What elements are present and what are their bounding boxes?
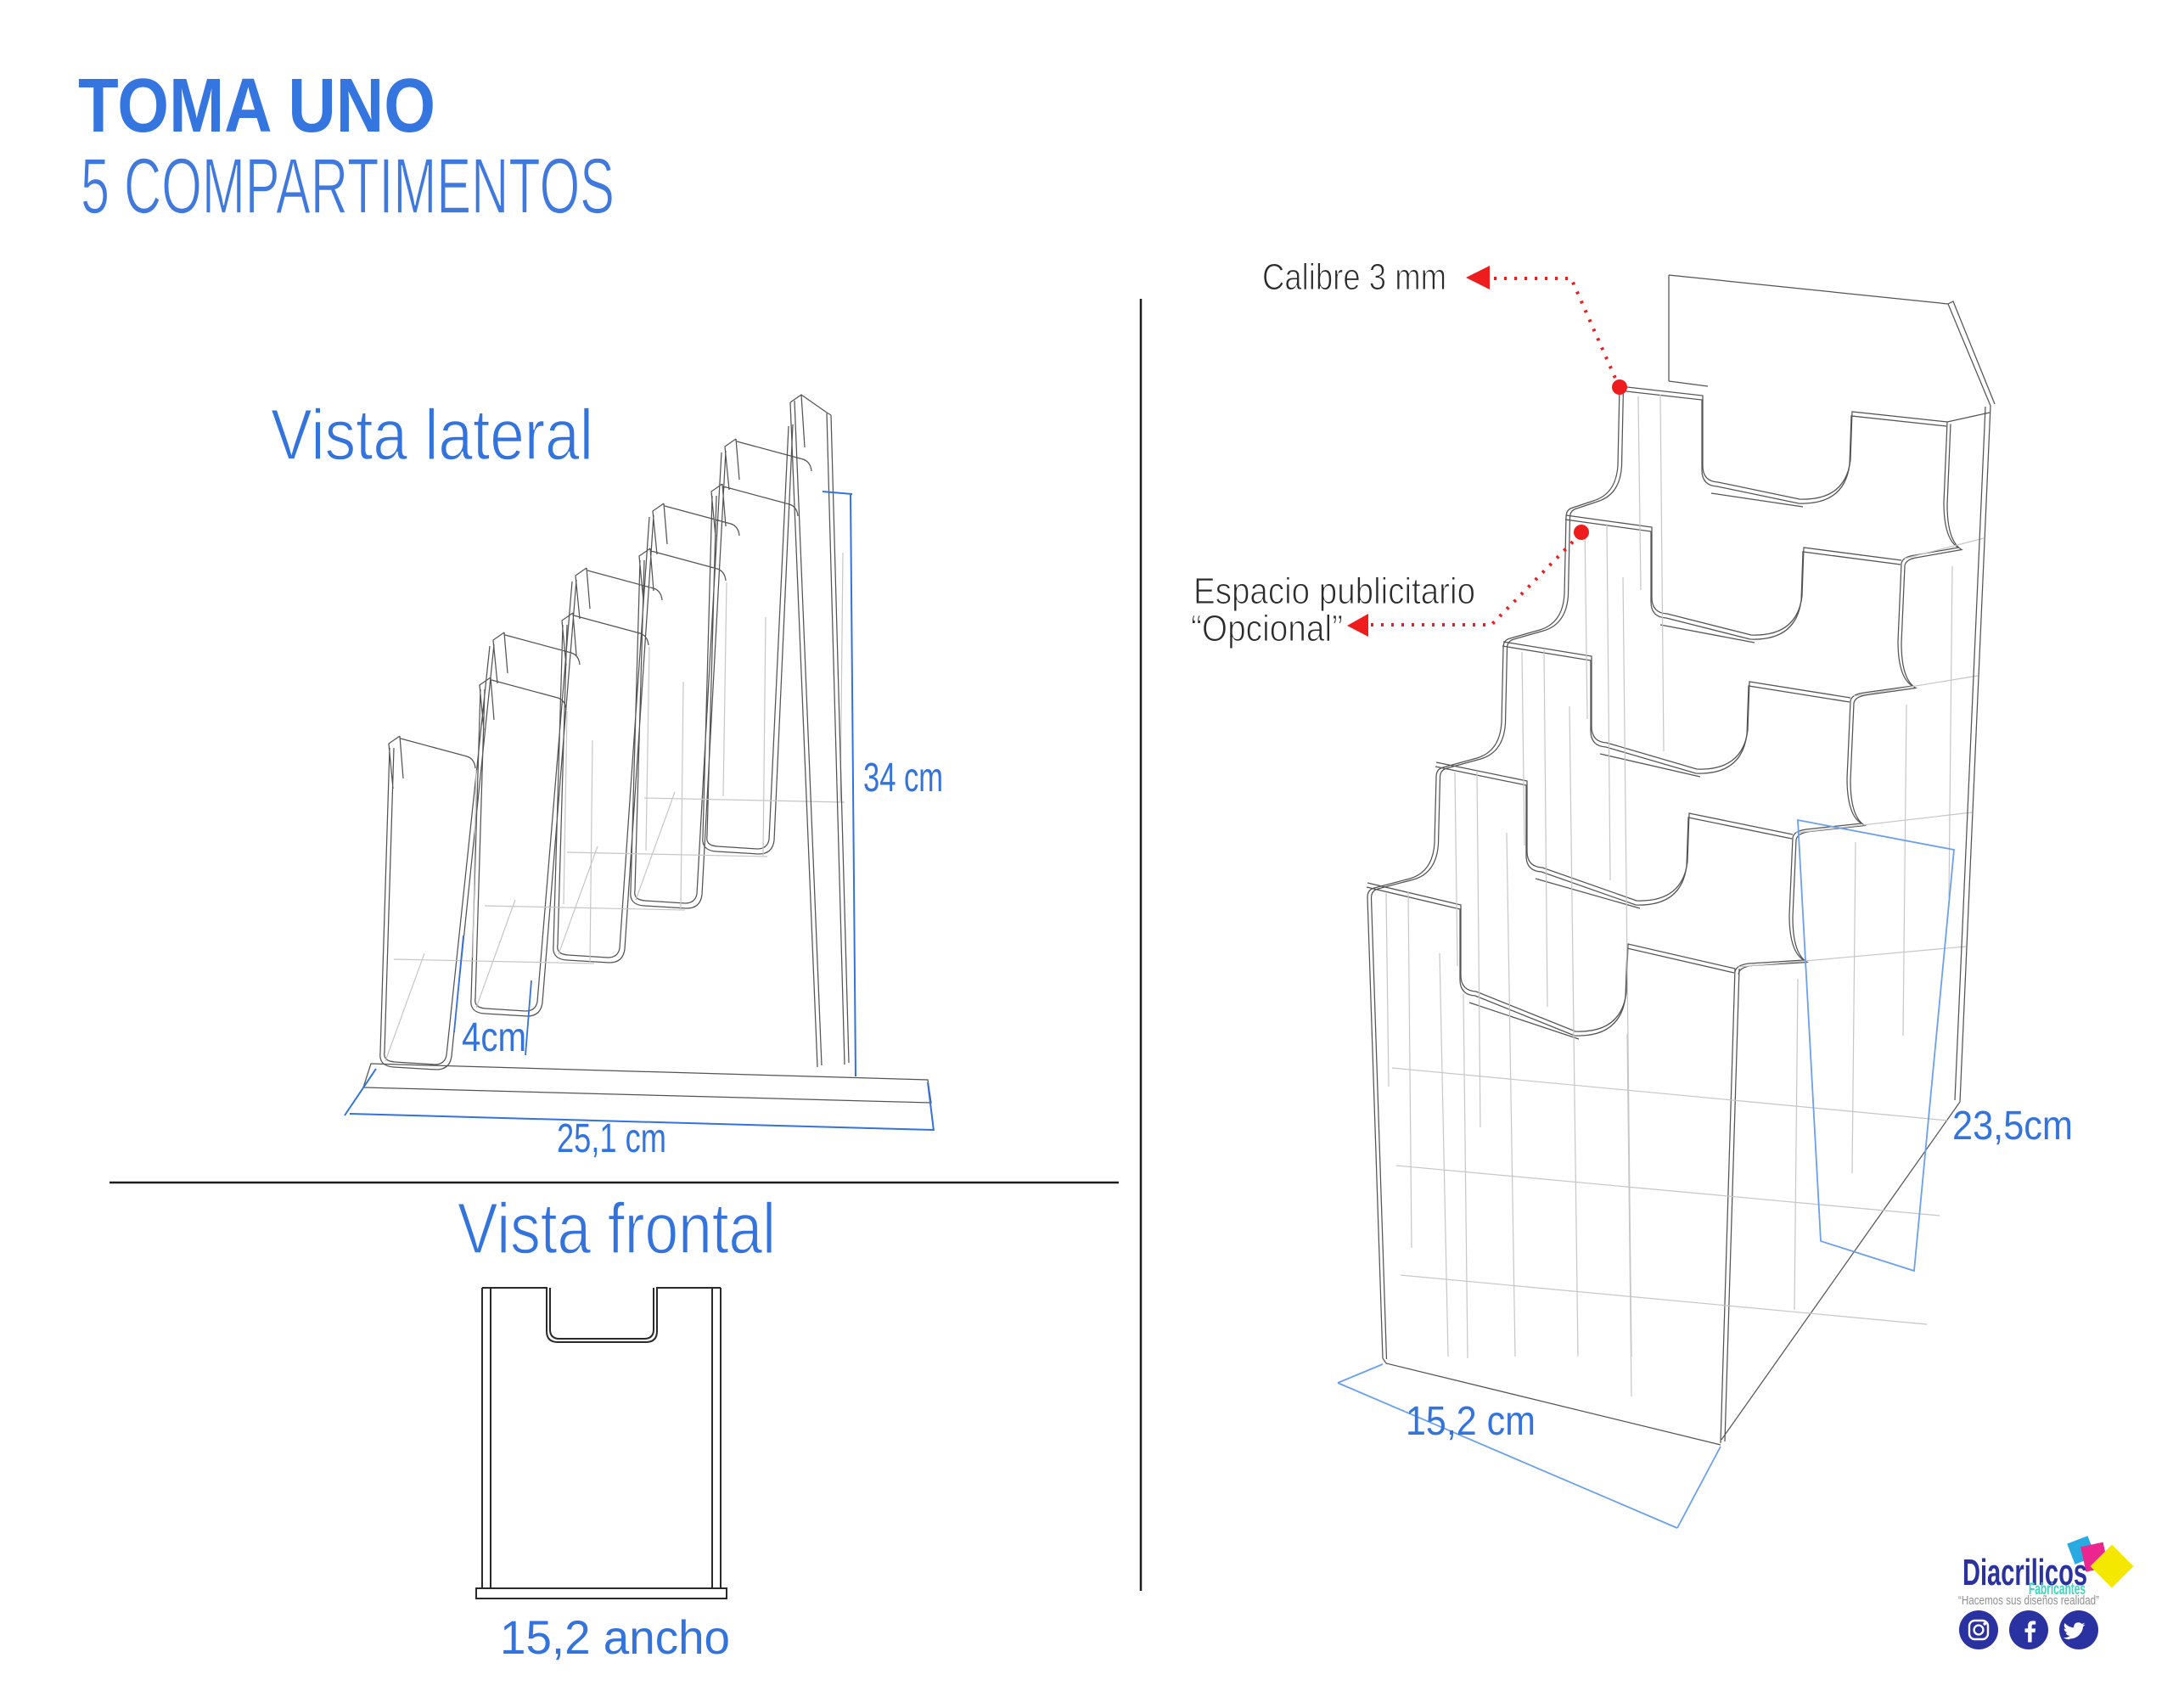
svg-text:5 COMPARTIMENTOS: 5 COMPARTIMENTOS: [81, 142, 615, 230]
svg-text:4cm: 4cm: [462, 1015, 526, 1060]
svg-text:Calibre 3 mm: Calibre 3 mm: [1262, 256, 1446, 298]
svg-text:“Opcional”: “Opcional”: [1191, 608, 1343, 649]
svg-text:Vista lateral: Vista lateral: [271, 395, 593, 475]
svg-text:Vista frontal: Vista frontal: [458, 1188, 776, 1268]
svg-text:15,2 cm: 15,2 cm: [1406, 1399, 1536, 1444]
svg-text:Espacio publicitario: Espacio publicitario: [1193, 570, 1475, 612]
svg-text:25,1 cm: 25,1 cm: [557, 1116, 666, 1161]
svg-text:23,5cm: 23,5cm: [1952, 1104, 2073, 1149]
svg-text:TOMA UNO: TOMA UNO: [78, 64, 435, 149]
svg-text:“Hacemos sus diseños realidad”: “Hacemos sus diseños realidad”: [1958, 1593, 2099, 1608]
svg-text:34 cm: 34 cm: [863, 756, 943, 801]
svg-text:15,2 ancho: 15,2 ancho: [500, 1610, 730, 1664]
